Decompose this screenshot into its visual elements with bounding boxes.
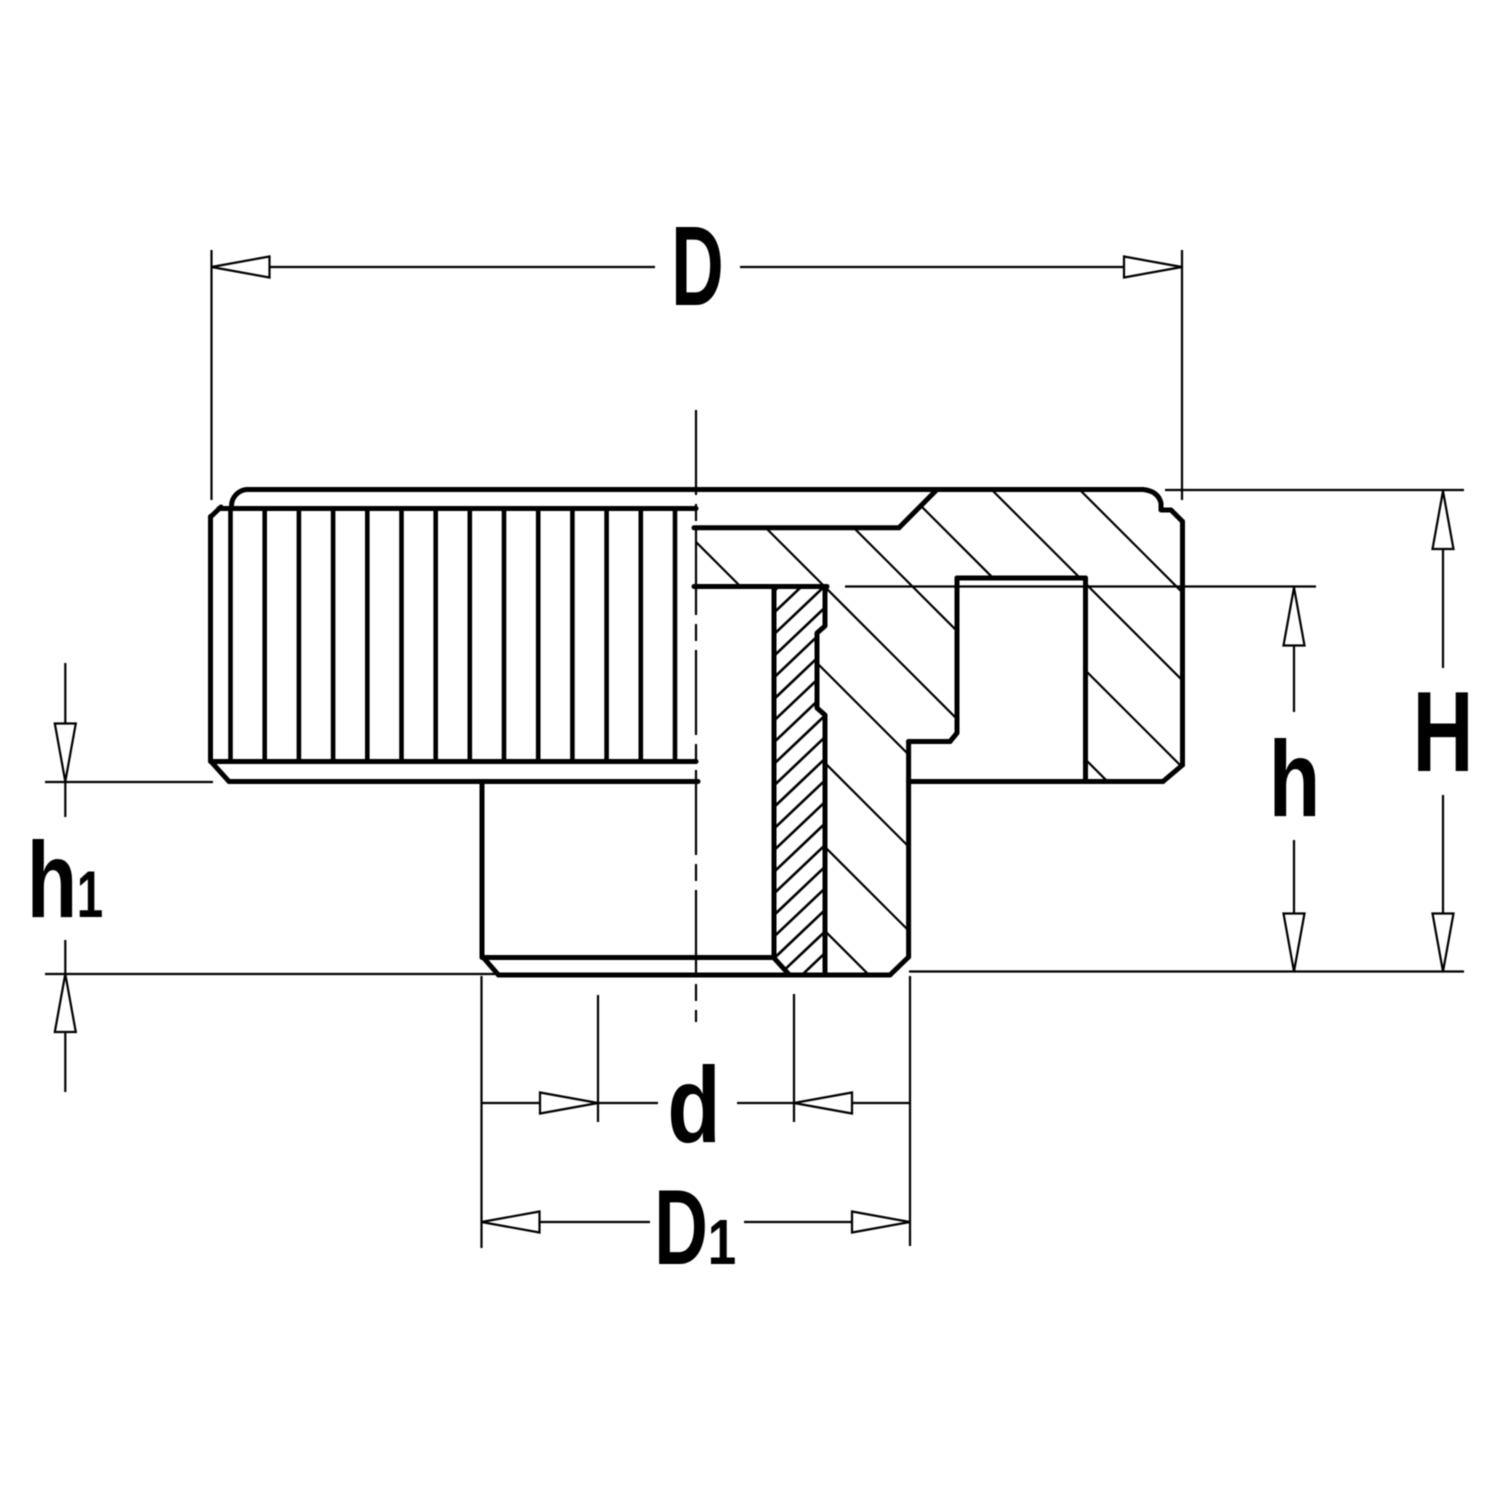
svg-text:d: d bbox=[667, 1044, 720, 1165]
svg-text:D: D bbox=[654, 1168, 708, 1288]
svg-text:1: 1 bbox=[708, 1208, 736, 1279]
svg-text:D: D bbox=[671, 204, 724, 330]
svg-text:H: H bbox=[1412, 669, 1473, 796]
svg-text:h: h bbox=[27, 820, 77, 940]
svg-text:1: 1 bbox=[77, 858, 103, 931]
svg-text:h: h bbox=[1269, 718, 1321, 839]
